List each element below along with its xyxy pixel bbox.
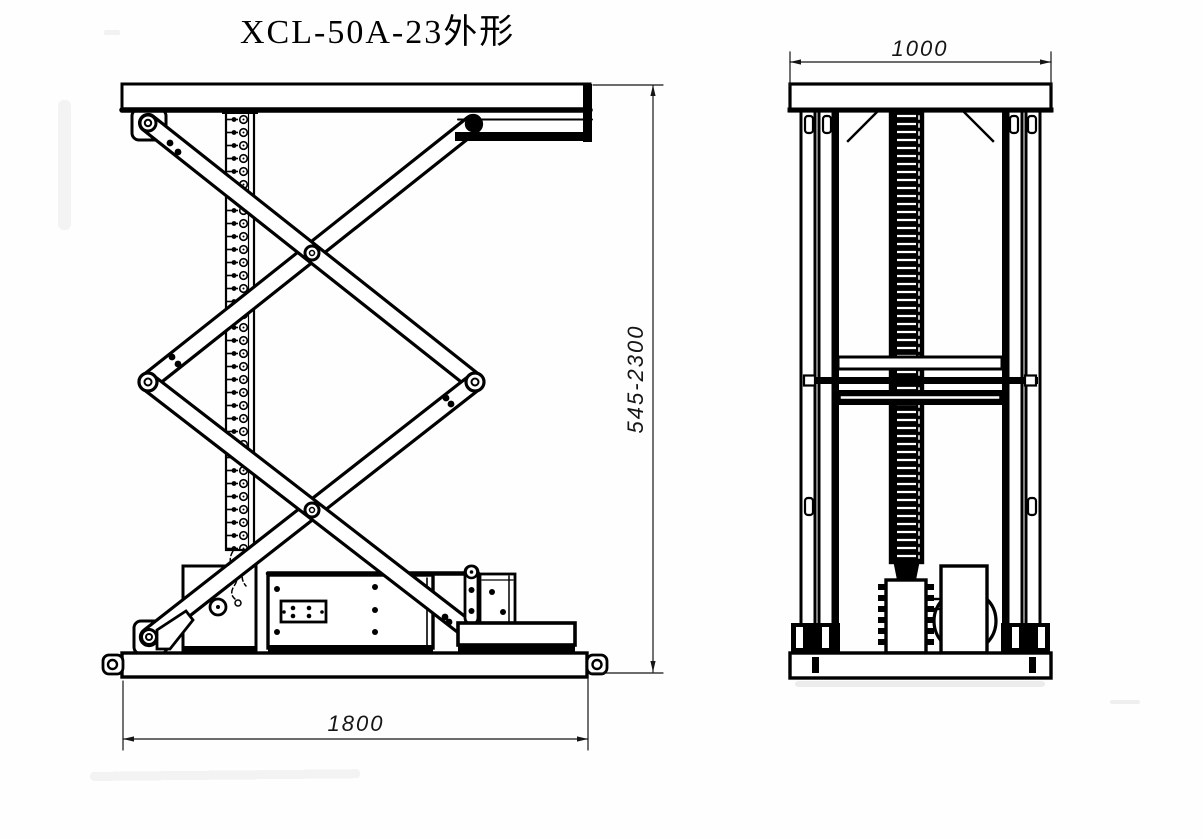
roller-track — [455, 132, 592, 141]
motor-box-front — [941, 566, 987, 653]
chain-column-front — [890, 112, 923, 563]
front-platform — [790, 84, 1051, 111]
chain-collar — [893, 560, 920, 580]
side-view: 545-2300 1800 — [103, 84, 663, 750]
front-base — [790, 653, 1051, 678]
nameplate — [281, 601, 326, 622]
cad-drawing: 545-2300 1800 — [0, 0, 1203, 839]
arm-bolts — [167, 140, 455, 626]
drawing-sheet: XCL-50A-23外形 — [0, 0, 1203, 839]
side-base — [103, 653, 607, 677]
front-view: 1000 — [790, 36, 1051, 678]
width-dim-label-front: 1000 — [892, 36, 949, 61]
top-right-roller — [466, 117, 480, 131]
height-dim-label: 545-2300 — [623, 325, 648, 434]
anchor-plates — [480, 574, 515, 623]
gearbox — [878, 580, 941, 653]
rail-plate — [458, 623, 575, 645]
width-dim-label-side: 1800 — [328, 711, 385, 736]
